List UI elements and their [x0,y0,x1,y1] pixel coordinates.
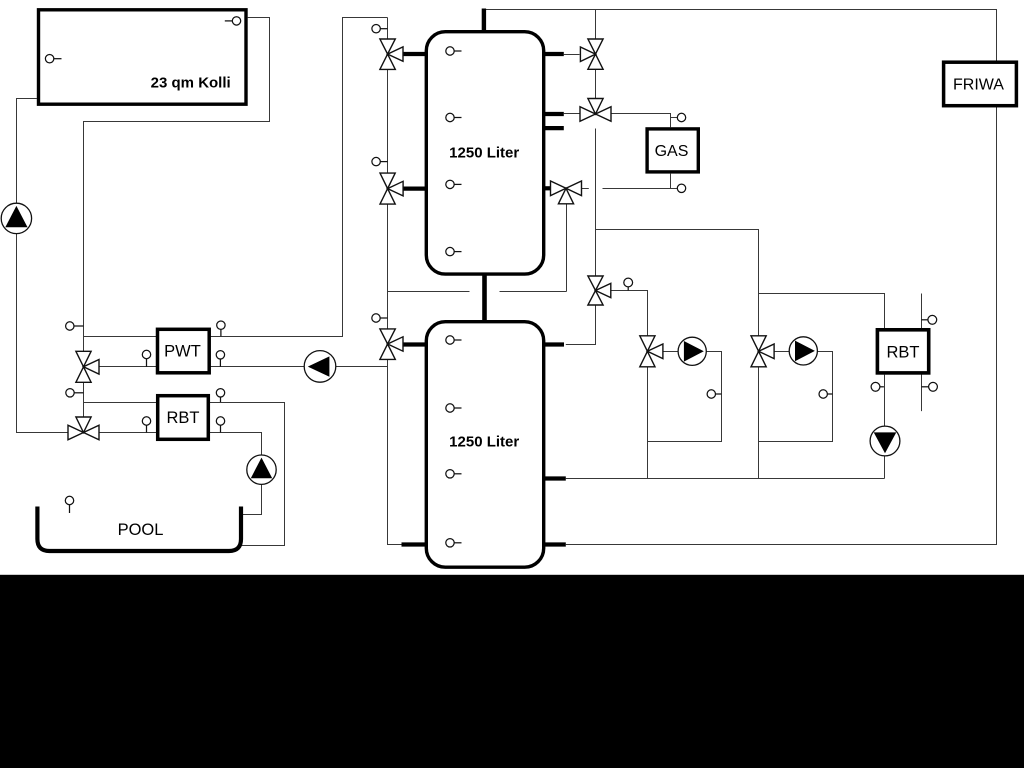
svg-text:POOL: POOL [118,521,164,539]
svg-text:PWT: PWT [164,343,201,361]
svg-text:RBT: RBT [167,409,200,427]
svg-text:RBT: RBT [887,344,920,362]
svg-text:FRIWA: FRIWA [953,77,1004,94]
svg-text:1250 Liter: 1250 Liter [449,434,519,451]
svg-text:1250 Liter: 1250 Liter [449,145,519,162]
svg-text:23 qm Kolli: 23 qm Kolli [151,75,231,92]
svg-text:GAS: GAS [655,143,689,160]
